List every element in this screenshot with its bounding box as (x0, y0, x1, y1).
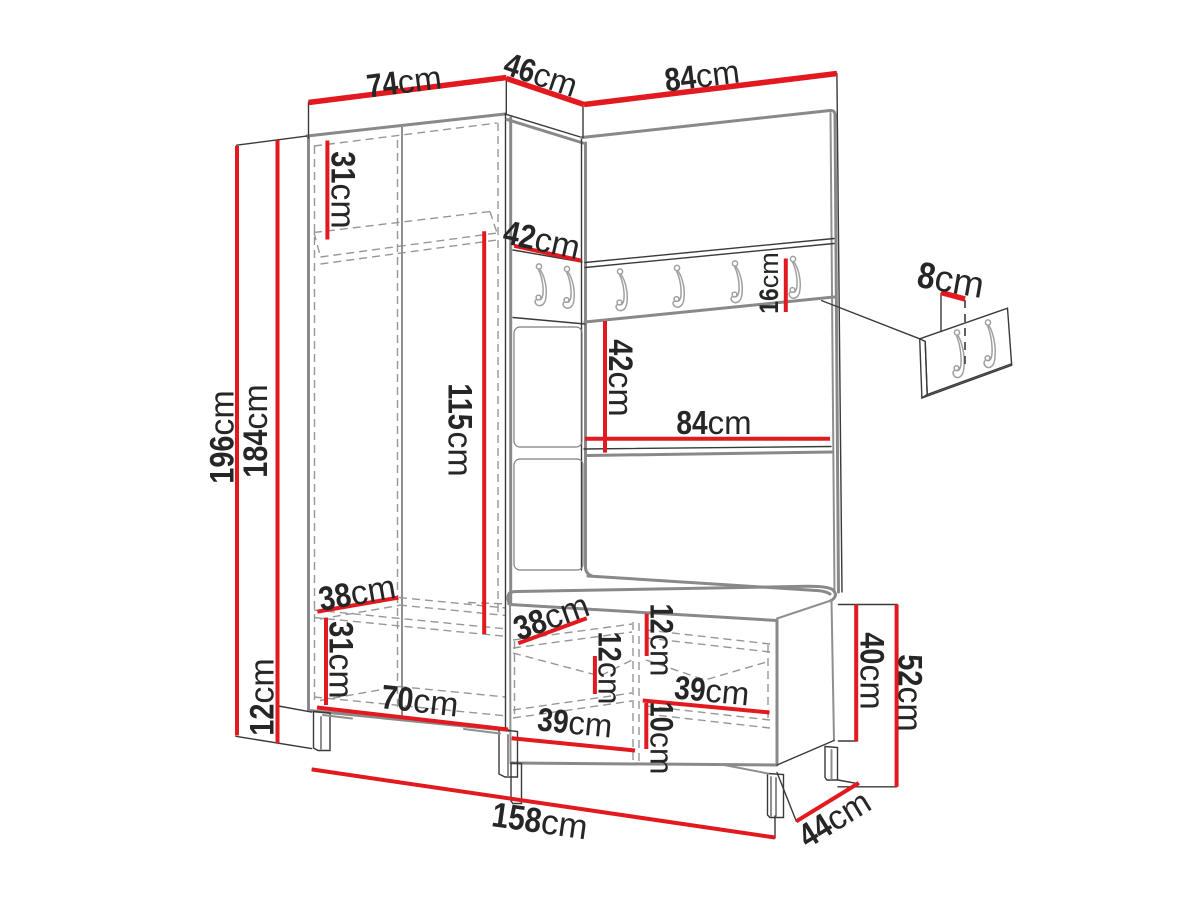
svg-text:16: 16 (754, 288, 784, 314)
svg-text:cm: cm (324, 183, 362, 228)
svg-text:39: 39 (673, 669, 708, 708)
svg-text:31: 31 (322, 621, 361, 653)
svg-text:cm: cm (567, 703, 614, 744)
svg-text:115: 115 (441, 383, 480, 430)
svg-text:39: 39 (536, 701, 571, 741)
svg-text:40: 40 (853, 632, 892, 664)
svg-text:cm: cm (693, 53, 741, 95)
svg-text:10: 10 (643, 702, 679, 732)
svg-text:158: 158 (490, 795, 545, 840)
svg-text:cm: cm (643, 732, 679, 775)
svg-text:cm: cm (932, 257, 988, 306)
svg-text:12: 12 (591, 632, 627, 662)
svg-text:84: 84 (676, 405, 707, 442)
svg-text:42: 42 (602, 339, 641, 371)
svg-text:70: 70 (379, 677, 415, 719)
svg-text:cm: cm (203, 390, 241, 435)
svg-text:12: 12 (643, 604, 679, 634)
svg-text:cm: cm (395, 58, 443, 100)
svg-text:cm: cm (539, 802, 591, 847)
svg-text:cm: cm (243, 658, 281, 703)
svg-text:cm: cm (708, 404, 752, 441)
svg-text:cm: cm (322, 653, 360, 698)
svg-text:cm: cm (591, 662, 627, 705)
svg-text:cm: cm (704, 671, 751, 712)
svg-text:cm: cm (754, 252, 784, 288)
svg-text:cm: cm (347, 568, 398, 613)
svg-text:cm: cm (601, 371, 639, 416)
svg-text:12: 12 (242, 704, 281, 736)
svg-text:31: 31 (324, 151, 363, 183)
svg-text:cm: cm (643, 634, 679, 677)
svg-text:cm: cm (441, 431, 479, 476)
svg-text:cm: cm (237, 384, 275, 429)
svg-text:52: 52 (891, 654, 930, 686)
svg-text:cm: cm (853, 664, 891, 709)
svg-text:84: 84 (663, 59, 698, 99)
svg-text:cm: cm (411, 682, 460, 725)
svg-text:74: 74 (365, 65, 401, 105)
svg-text:184: 184 (236, 429, 275, 478)
svg-text:cm: cm (891, 686, 929, 731)
